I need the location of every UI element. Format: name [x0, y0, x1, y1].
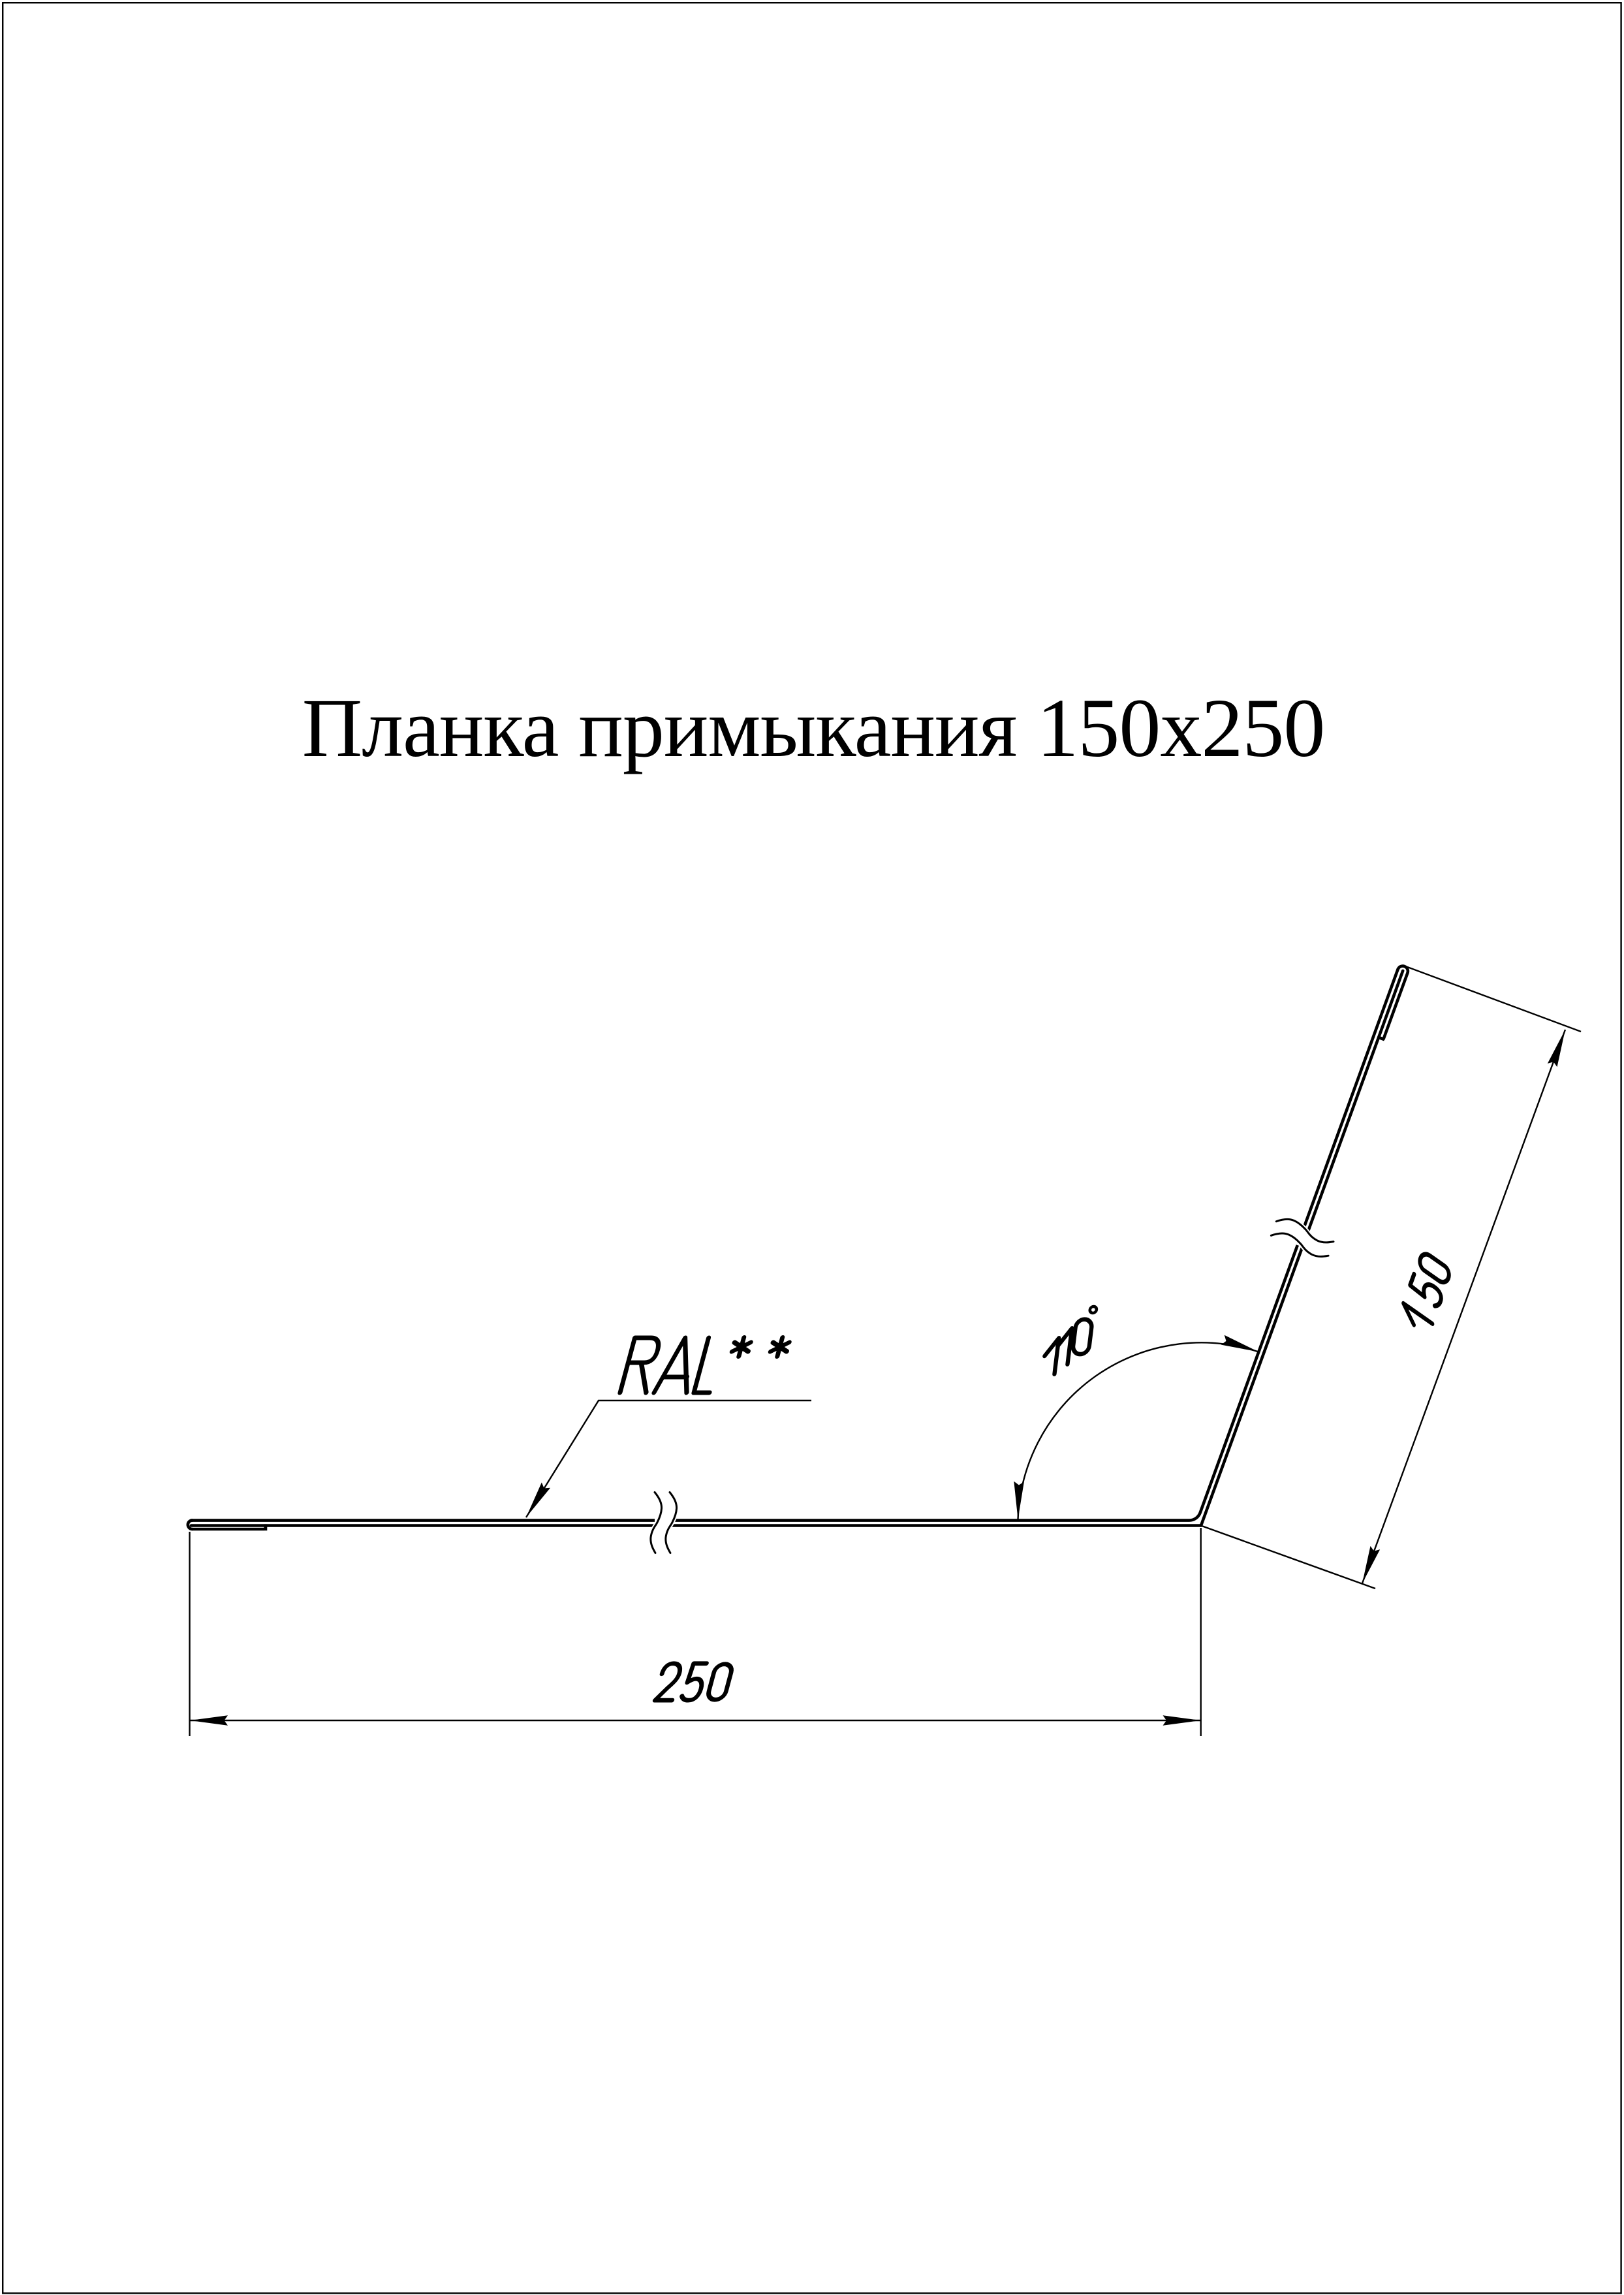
svg-text:Планка примыкания 150х250: Планка примыкания 150х250 [302, 682, 1325, 774]
